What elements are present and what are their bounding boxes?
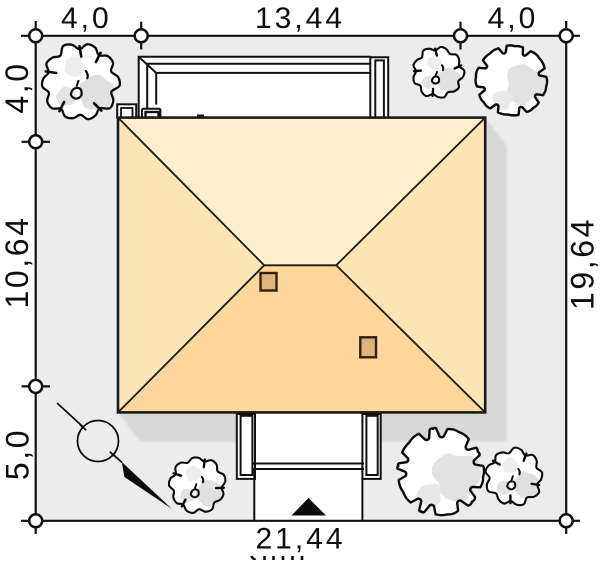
svg-text:4,0: 4,0 — [488, 2, 539, 35]
svg-text:10,64: 10,64 — [0, 215, 35, 308]
svg-text:4,0: 4,0 — [0, 61, 35, 113]
svg-text:5,0: 5,0 — [0, 428, 36, 480]
svg-text:21,44: 21,44 — [255, 523, 345, 556]
svg-text:4,0: 4,0 — [61, 2, 112, 35]
svg-text:13,44: 13,44 — [255, 2, 345, 35]
svg-text:19,64: 19,64 — [565, 217, 600, 310]
